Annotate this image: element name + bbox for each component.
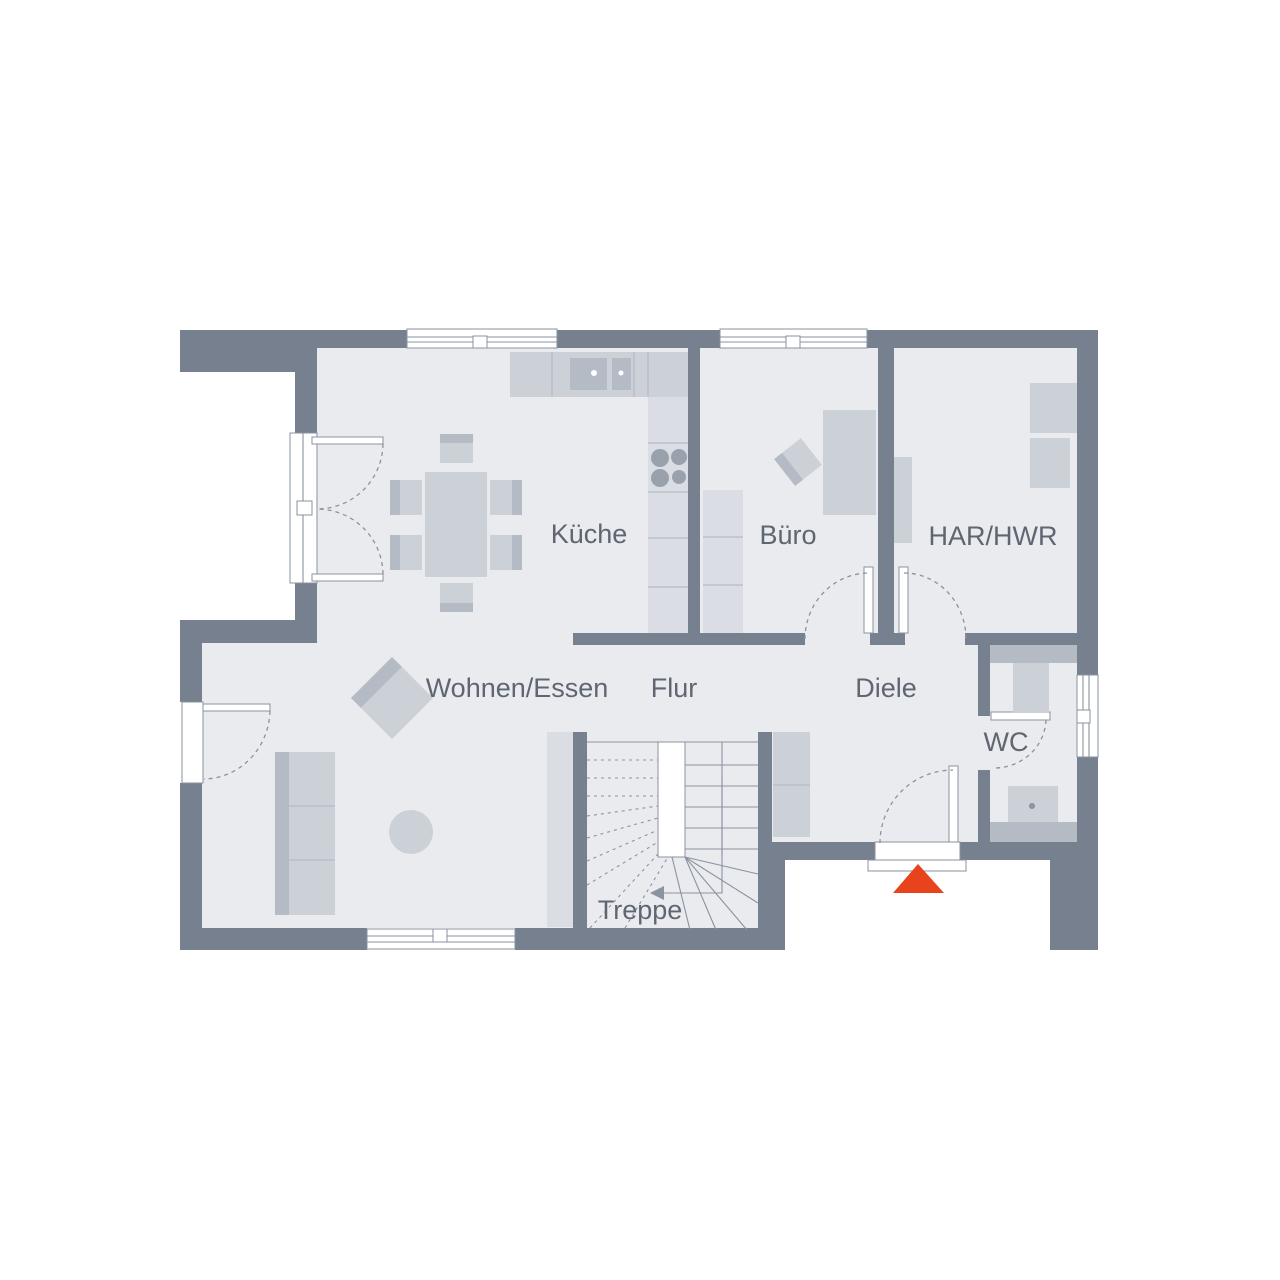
door-leaf bbox=[203, 704, 270, 711]
wall-segment bbox=[295, 348, 317, 435]
room-label-wohnen-essen: Wohnen/Essen bbox=[426, 673, 609, 703]
wall-segment bbox=[317, 330, 407, 348]
kitchen-sink bbox=[570, 358, 607, 390]
window-kitchen bbox=[407, 329, 557, 348]
wall-segment bbox=[295, 580, 317, 620]
wall-hall-north bbox=[573, 633, 805, 645]
dining-chair bbox=[490, 480, 522, 515]
room-label-buero: Büro bbox=[759, 520, 816, 550]
wc-basin bbox=[1013, 663, 1049, 713]
wall-segment bbox=[180, 643, 202, 702]
room-label-flur: Flur bbox=[651, 673, 698, 703]
wall-wc-west-upper bbox=[978, 645, 990, 716]
door-leaf bbox=[312, 574, 383, 581]
entrance-pier-left bbox=[772, 842, 785, 950]
dining-table bbox=[425, 472, 487, 577]
wall-segment bbox=[515, 928, 785, 950]
room-label-kueche: Küche bbox=[551, 519, 628, 549]
wall-segment bbox=[180, 620, 317, 643]
wall-segment bbox=[180, 783, 202, 950]
wall-segment bbox=[180, 928, 367, 950]
dining-chair bbox=[440, 583, 473, 612]
dining-chair bbox=[390, 480, 422, 515]
door-leaf bbox=[312, 437, 383, 444]
floorplan-canvas: Wohnen/Essen Küche Büro HAR/HWR Flur Die… bbox=[0, 0, 1280, 1280]
wall-stair-west bbox=[573, 732, 587, 930]
wc-lower-band bbox=[990, 822, 1077, 842]
window-symbol bbox=[433, 929, 447, 942]
door-symbol bbox=[297, 501, 312, 515]
door-leaf bbox=[864, 567, 873, 633]
wall-segment bbox=[867, 330, 1098, 348]
stair-well bbox=[658, 742, 685, 857]
wall-stub bbox=[870, 633, 905, 645]
wall-segment bbox=[1077, 757, 1098, 860]
dining-chair bbox=[440, 434, 473, 463]
kitchen-counter-side bbox=[648, 397, 688, 633]
wc-counter bbox=[990, 645, 1077, 663]
dryer bbox=[1030, 438, 1070, 488]
window-symbol bbox=[1077, 710, 1090, 723]
room-label-diele: Diele bbox=[855, 673, 917, 703]
wall-segment bbox=[1077, 348, 1098, 675]
door-leaf bbox=[949, 766, 958, 842]
room-label-treppe: Treppe bbox=[598, 895, 683, 925]
sideboard bbox=[547, 732, 573, 927]
side-table bbox=[389, 810, 433, 854]
office-shelf bbox=[703, 490, 743, 633]
washer bbox=[1030, 383, 1077, 433]
door-leaf bbox=[899, 567, 908, 633]
dining-chair bbox=[490, 535, 522, 570]
dining-chair bbox=[390, 535, 422, 570]
office-desk bbox=[823, 410, 876, 515]
wall-segment bbox=[557, 330, 720, 348]
window-wc-east bbox=[1077, 675, 1098, 757]
door-leaf bbox=[991, 712, 1050, 720]
room-label-har-hwr: HAR/HWR bbox=[929, 521, 1058, 551]
floorplan-svg: Wohnen/Essen Küche Büro HAR/HWR Flur Die… bbox=[0, 0, 1280, 1280]
wall-wc-west-lower bbox=[978, 770, 990, 842]
wall-wc-north bbox=[965, 633, 1077, 645]
window-symbol bbox=[473, 336, 487, 348]
wall-stair-east bbox=[758, 732, 772, 930]
wall-office-utility bbox=[878, 348, 894, 633]
window-living-south bbox=[367, 929, 515, 949]
entrance-pier-right bbox=[1050, 860, 1098, 950]
wall-kitchen-office bbox=[688, 348, 700, 645]
sofa bbox=[275, 752, 335, 915]
utility-cabinet bbox=[894, 457, 912, 543]
window-symbol bbox=[786, 336, 800, 348]
wall-segment bbox=[960, 842, 1077, 860]
hall-closet bbox=[773, 732, 810, 837]
window-office bbox=[720, 329, 867, 348]
wall-segment bbox=[772, 842, 875, 860]
room-label-wc: WC bbox=[984, 727, 1029, 757]
